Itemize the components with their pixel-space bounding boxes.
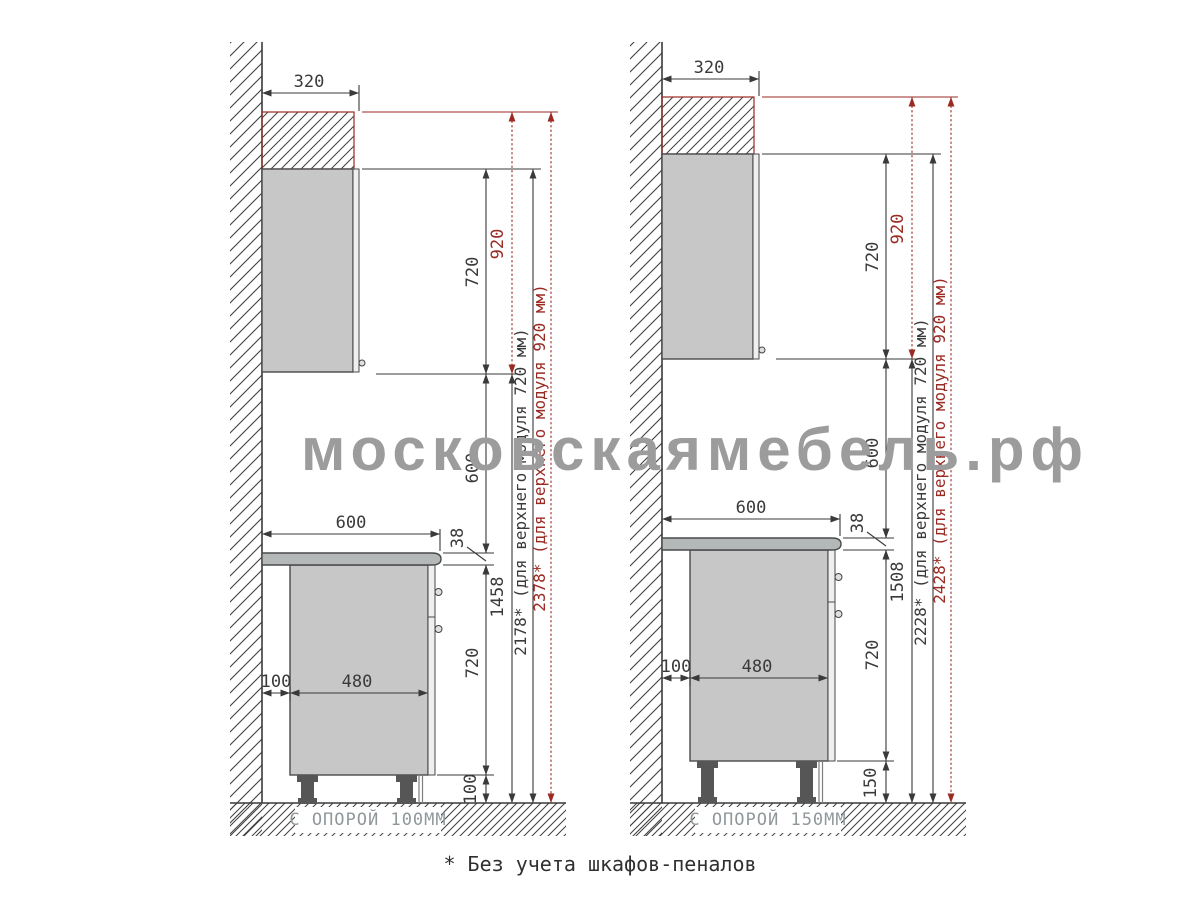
dim-base-module-height: 720 [463, 565, 486, 775]
dim-base-module-height: 720 [863, 550, 886, 761]
base-front [828, 550, 835, 761]
dim-worktop-thickness-label: 38 [448, 528, 468, 548]
dim-worktop-width: 600 [662, 498, 840, 536]
dim-upper-bottom-to-floor-label: 1508 [888, 562, 908, 603]
dim-wall-gap: 100 [661, 657, 692, 686]
dim-worktop-width-label: 600 [336, 513, 367, 533]
dim-worktop-thickness-label: 38 [848, 513, 868, 533]
door-knob [435, 626, 442, 633]
dim-leg-height-label: 100 [461, 774, 481, 805]
drawer-knob [435, 589, 442, 596]
dim-base-depth-label: 480 [342, 672, 373, 692]
dim-wall-gap: 100 [261, 672, 292, 701]
dim-upper-module-alt-height-label: 920 [488, 229, 508, 260]
floor-label: С ОПОРОЙ 150ММ [689, 808, 846, 830]
dim-leg-height: 150 [861, 761, 886, 803]
dim-base-depth-label: 480 [742, 657, 773, 677]
dim-upper-module-height: 720 [463, 169, 486, 374]
dim-upper-module-height-label: 720 [463, 257, 483, 288]
drawer-knob [835, 574, 842, 581]
countertop [662, 538, 841, 550]
wall-hatch [230, 42, 262, 836]
dim-upper-module-height-label: 720 [863, 242, 883, 273]
kitchen-dimension-diagram: 320 600 100 480 720 600 38 [0, 0, 1200, 900]
leg [697, 761, 718, 803]
dim-upper-module-alt-height: 920 [888, 97, 912, 359]
upper-door-front [353, 169, 359, 372]
dim-wall-gap-label: 100 [661, 657, 692, 677]
dim-worktop-width: 600 [262, 513, 440, 551]
footnote: * Без учета шкафов-пеналов [443, 852, 756, 876]
leg [297, 775, 318, 804]
upper-door-knob [359, 360, 365, 366]
dim-leg-height-label: 150 [861, 768, 881, 799]
upper-door-front [753, 154, 759, 359]
base-front [428, 565, 435, 775]
dim-base-module-height-label: 720 [463, 648, 483, 679]
dim-upper-module-height: 720 [863, 154, 886, 359]
dim-base-module-height-label: 720 [863, 640, 883, 671]
dim-top-width: 320 [262, 72, 359, 111]
dim-upper-bottom-to-floor-label: 1458 [488, 577, 508, 618]
countertop [262, 553, 441, 565]
dim-total-height-720-label: 2178* (для верхнего модуля 720 мм) [511, 328, 530, 656]
door-knob [835, 611, 842, 618]
floor-label: С ОПОРОЙ 100ММ [289, 808, 446, 830]
leg [796, 761, 817, 803]
watermark: московскаямебель.рф [301, 416, 1089, 483]
upper-extension-zone [662, 97, 754, 154]
upper-cabinet [262, 169, 365, 372]
dim-top-width-label: 320 [694, 58, 725, 78]
dim-leg-height: 100 [461, 774, 486, 805]
upper-cabinet [662, 154, 765, 359]
dim-upper-module-alt-height: 920 [488, 112, 512, 374]
upper-door-knob [759, 347, 765, 353]
drawing-canvas: 320 600 100 480 720 600 38 [0, 0, 1200, 900]
dim-upper-module-alt-height-label: 920 [888, 214, 908, 245]
dim-worktop-width-label: 600 [736, 498, 767, 518]
upper-extension-zone [262, 112, 354, 169]
dim-top-width-label: 320 [294, 72, 325, 92]
dim-wall-gap-label: 100 [261, 672, 292, 692]
leg [396, 775, 417, 804]
dim-top-width: 320 [662, 58, 759, 96]
